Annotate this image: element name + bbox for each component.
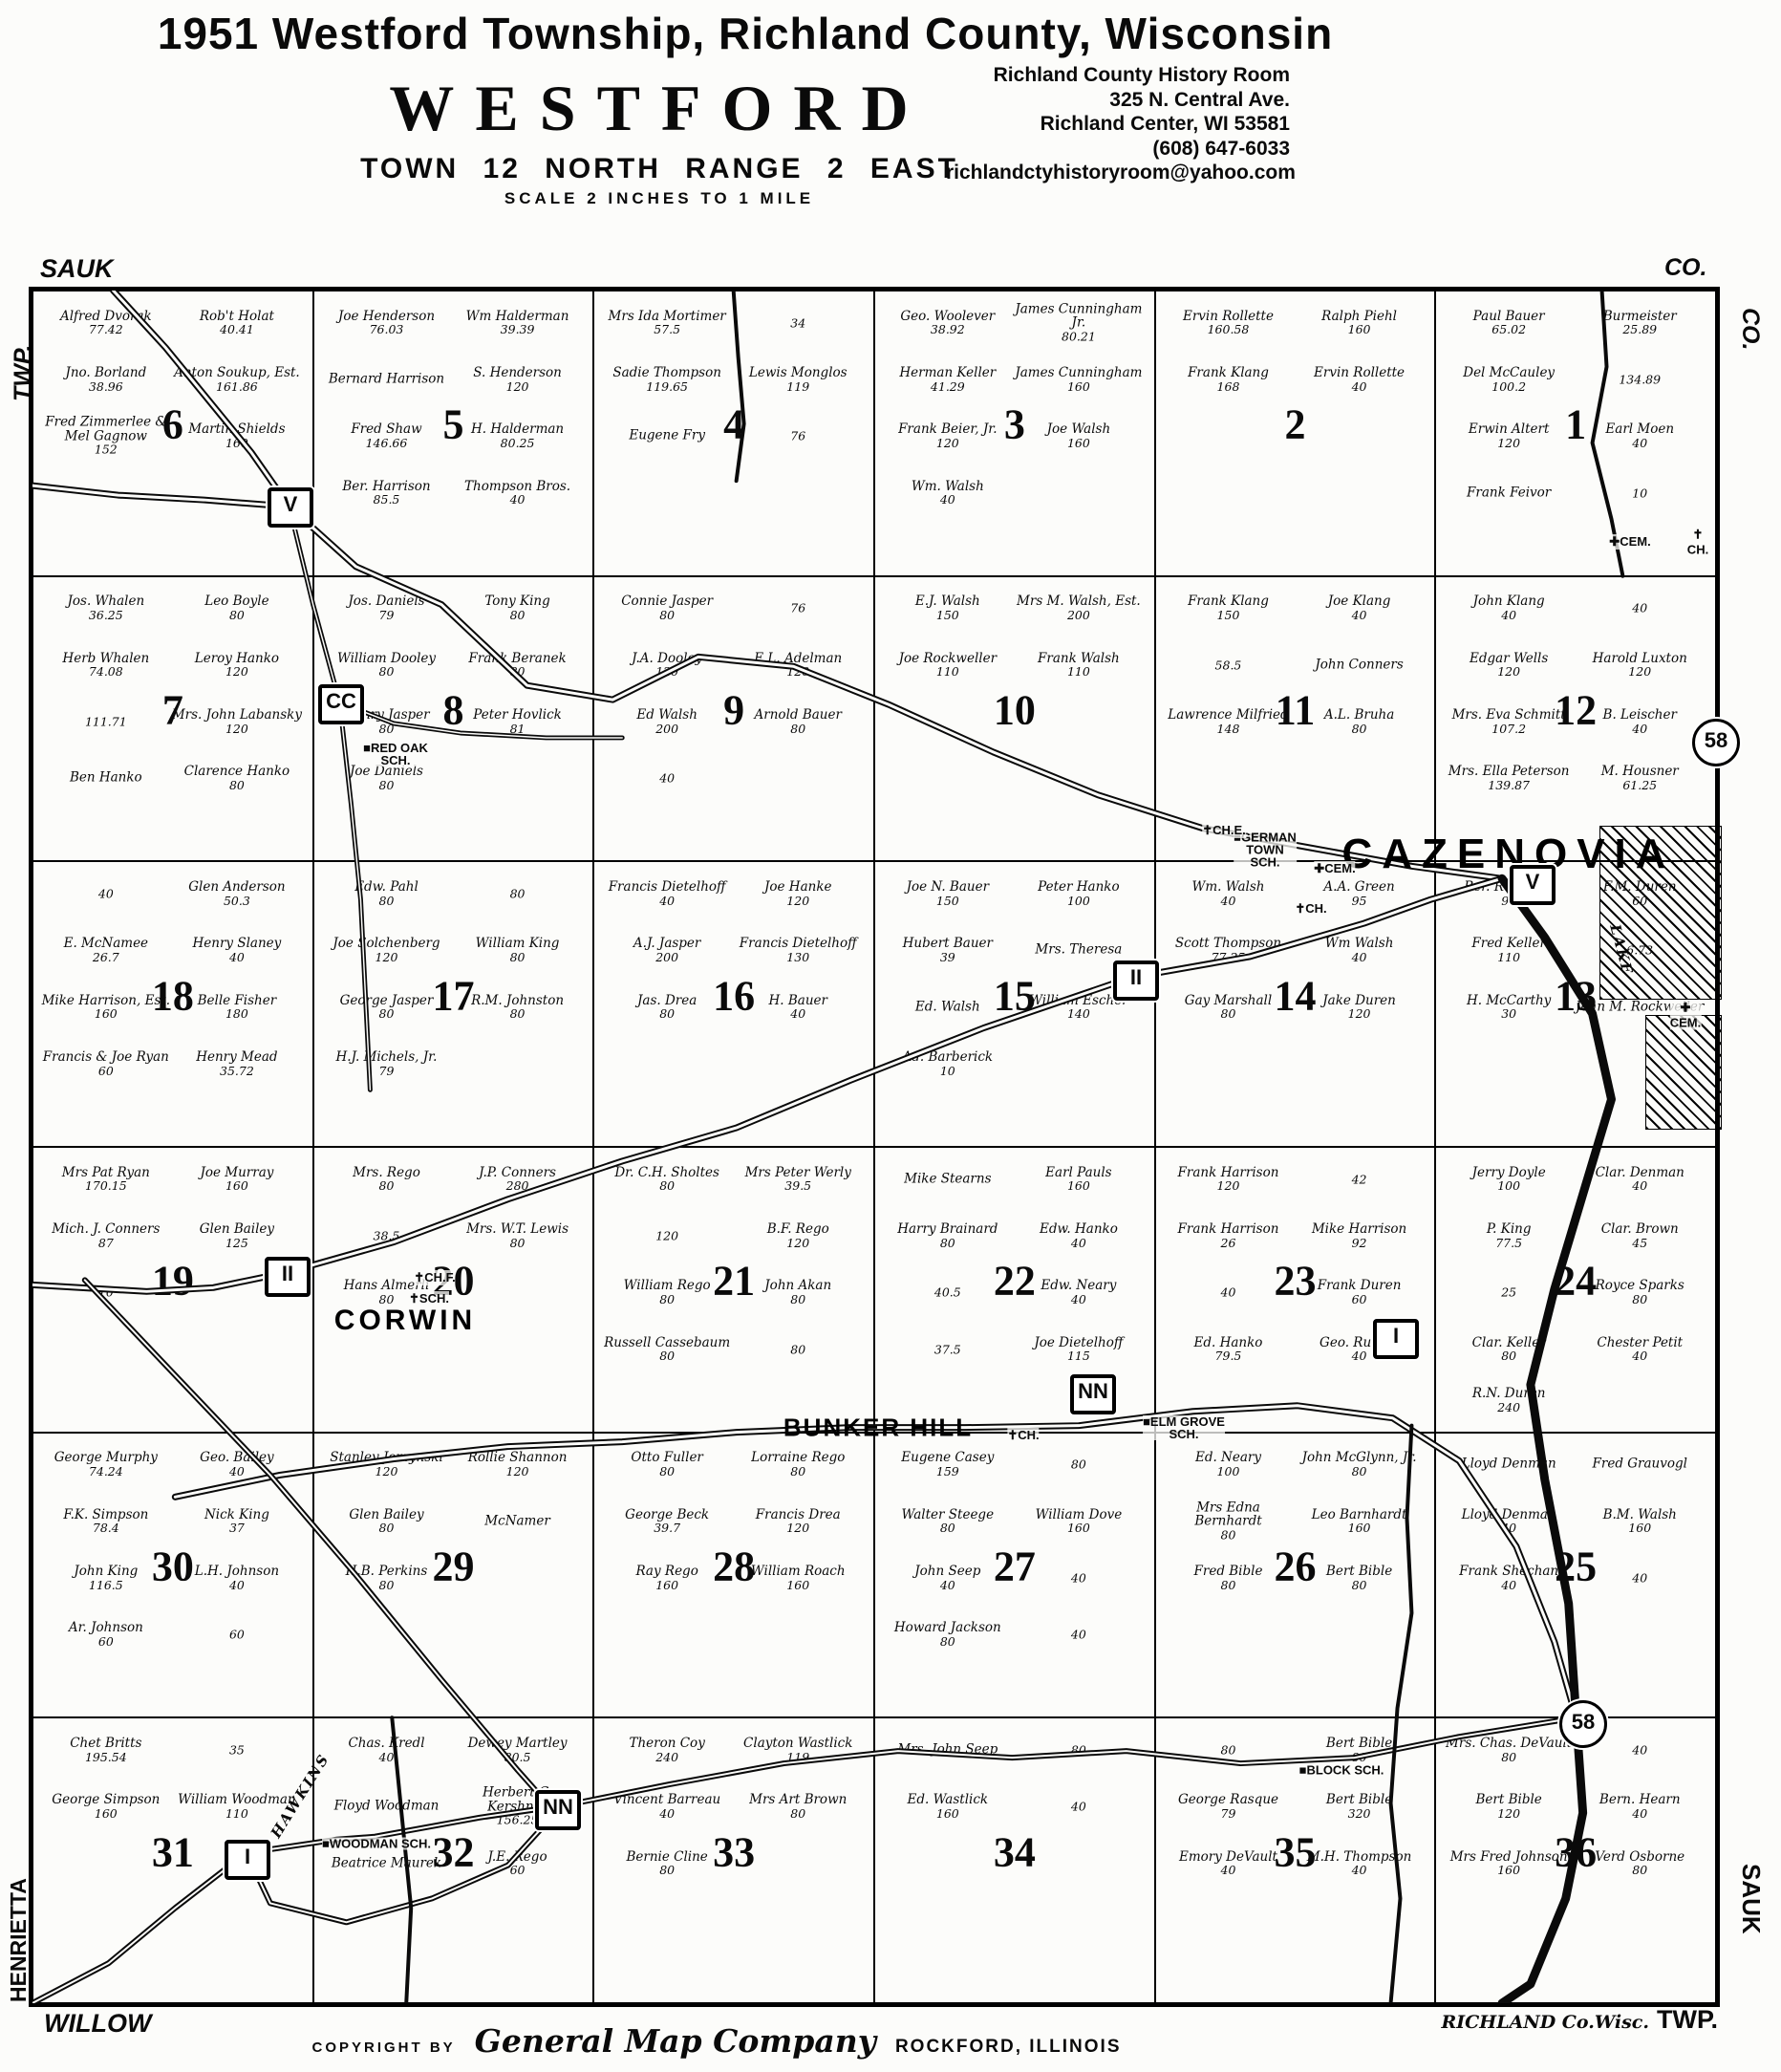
road-line xyxy=(290,507,371,1090)
road-line xyxy=(340,702,623,738)
road-line xyxy=(32,1280,556,2003)
contact-line: Richland Center, WI 53581 xyxy=(946,112,1290,137)
edge-label-co-top: CO. xyxy=(1664,254,1706,282)
page-title: 1951 Westford Township, Richland County,… xyxy=(0,8,1491,59)
contact-line: richlandctyhistoryroom@yahoo.com xyxy=(946,161,1290,185)
road-line xyxy=(734,291,744,481)
corner-county-label: RICHLAND Co.Wisc. xyxy=(1441,2012,1649,2033)
road-line xyxy=(1593,291,1623,576)
road-line xyxy=(32,486,290,507)
roads-layer xyxy=(32,291,1716,2003)
road-line xyxy=(1502,878,1611,2003)
road-line xyxy=(247,1717,1577,1852)
road-line xyxy=(175,1406,1576,1718)
road-line xyxy=(392,1717,411,2003)
plat-map-page: 1951 Westford Township, Richland County,… xyxy=(0,0,1781,2072)
contact-block: Richland County History Room325 N. Centr… xyxy=(946,63,1290,185)
road-line xyxy=(114,291,1502,878)
road-line xyxy=(247,1717,1577,1852)
scale-label: SCALE 2 INCHES TO 1 MILE xyxy=(325,189,994,208)
contact-line: Richland County History Room xyxy=(946,63,1290,88)
edge-label-co-right: CO. xyxy=(1736,308,1764,350)
copyright-line: COPYRIGHT BY General Map Company ROCKFOR… xyxy=(0,2022,1433,2060)
township-name: WESTFORD xyxy=(325,71,994,146)
company-city: ROCKFORD, ILLINOIS xyxy=(895,2037,1122,2058)
contact-line: 325 N. Central Ave. xyxy=(946,88,1290,113)
road-line xyxy=(32,1280,556,2003)
road-line xyxy=(32,878,1502,1291)
road-line xyxy=(290,507,371,1090)
road-line xyxy=(32,878,1502,1291)
copyright-prefix: COPYRIGHT BY xyxy=(311,2040,455,2056)
corner-twp-label: TWP. xyxy=(1657,2005,1718,2035)
edge-label-sauk-top: SAUK xyxy=(40,254,114,284)
edge-label-sauk-right: SAUK xyxy=(1736,1864,1766,1934)
map-company-name: General Map Company xyxy=(475,2022,876,2060)
edge-label-henrietta-left: HENRIETTA xyxy=(6,1878,32,2002)
road-line xyxy=(1391,1426,1412,2003)
town-range-label: TOWN 12 NORTH RANGE 2 EAST xyxy=(325,153,994,185)
contact-line: (608) 647-6033 xyxy=(946,137,1290,162)
township-map: 6Alfred Dvorak77.42Rob't Holat40.41Jno. … xyxy=(29,287,1720,2007)
corner-attribution: RICHLAND Co.Wisc.TWP. xyxy=(1403,2005,1718,2035)
road-line xyxy=(175,1406,1576,1718)
road-line xyxy=(114,291,1502,878)
